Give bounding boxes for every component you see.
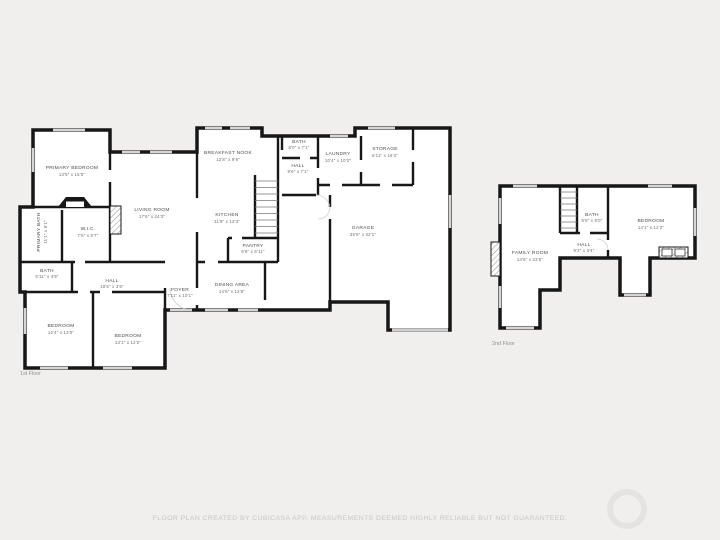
- first-floor-plan: PRIMARY BEDROOM 13'5" x 15'5" PRIMARY BA…: [20, 128, 450, 377]
- second-floor-plan: FAMILY ROOM 14'6" x 23'5" HALL 9'2" x 3'…: [491, 186, 695, 347]
- room-dims-laundry: 10'4" x 10'2": [325, 158, 351, 163]
- room-label-dining-area: DINING AREA: [215, 282, 250, 288]
- room-label-primary-bath: PRIMARY BATH: [36, 212, 42, 251]
- room-dims-bath-2: 5'8" x 9'0": [582, 218, 603, 223]
- room-dims-dining-area: 14'6" x 12'8": [219, 289, 245, 294]
- vanity-icon: [659, 247, 688, 258]
- room-label-kitchen: KITCHEN: [215, 212, 238, 218]
- room-label-living-room: LIVING ROOM: [134, 207, 169, 213]
- room-label-primary-bedroom: PRIMARY BEDROOM: [46, 165, 98, 171]
- watermark-logo-icon: [610, 492, 644, 526]
- room-dims-bedroom-2: 13'1" x 12'2": [115, 340, 141, 345]
- room-label-garage: GARAGE: [352, 225, 375, 231]
- room-dims-family-room: 14'6" x 23'5": [517, 257, 543, 262]
- room-dims-primary-bedroom: 13'5" x 15'5": [59, 172, 85, 177]
- room-label-bedroom-2: BEDROOM: [114, 333, 141, 339]
- chimney-hatch-icon: [110, 206, 121, 234]
- room-label-bedroom-3: BEDROOM: [637, 218, 664, 224]
- room-dims-garage: 35'8" x 32'1": [350, 232, 376, 237]
- room-dims-hall-left: 18'5" x 3'6": [100, 284, 124, 289]
- room-label-storage: STORAGE: [372, 146, 398, 152]
- room-dims-pantry: 6'6" x 5'11": [241, 249, 265, 254]
- room-dims-storage: 6'11" x 16'3": [372, 153, 398, 158]
- first-floor-label: 1st Floor: [20, 371, 41, 377]
- room-dims-primary-bath: 11'1" x 6'1": [43, 220, 48, 244]
- first-floor-outline: [20, 128, 450, 368]
- room-dims-foyer: 7'11" x 10'1": [167, 293, 193, 298]
- room-label-bedroom-1: BEDROOM: [47, 323, 74, 329]
- room-dims-bath-left: 5'11" x 4'9": [35, 274, 59, 279]
- room-dims-breakfast-nook: 12'8" x 9'9": [216, 157, 240, 162]
- chimney-hatch-2-icon: [491, 242, 500, 276]
- room-dims-living-room: 17'6" x 24'3": [139, 214, 165, 219]
- floor-plan-canvas: PRIMARY BEDROOM 13'5" x 15'5" PRIMARY BA…: [0, 0, 720, 540]
- room-dims-bedroom-3: 14'1" x 12'2": [638, 225, 664, 230]
- room-label-wic: W.I.C.: [81, 226, 96, 232]
- room-dims-hall-2: 9'2" x 3'4": [574, 248, 595, 253]
- room-dims-kitchen: 11'8" x 13'3": [214, 219, 240, 224]
- room-label-laundry: LAUNDRY: [325, 151, 351, 157]
- room-dims-hall-mid: 9'6" x 7'1": [288, 169, 309, 174]
- room-dims-wic: 7'5" x 5'7": [78, 233, 99, 238]
- room-label-family-room: FAMILY ROOM: [512, 250, 548, 256]
- footer-attribution: FLOOR PLAN CREATED BY CUBICASA APP. MEAS…: [153, 515, 568, 522]
- second-floor-label: 2nd Floor: [492, 341, 515, 347]
- room-dims-bath-mid: 8'0" x 7'1": [289, 145, 310, 150]
- room-label-breakfast-nook: BREAKFAST NOOK: [204, 150, 252, 156]
- room-dims-bedroom-1: 12'4" x 13'0": [48, 330, 74, 335]
